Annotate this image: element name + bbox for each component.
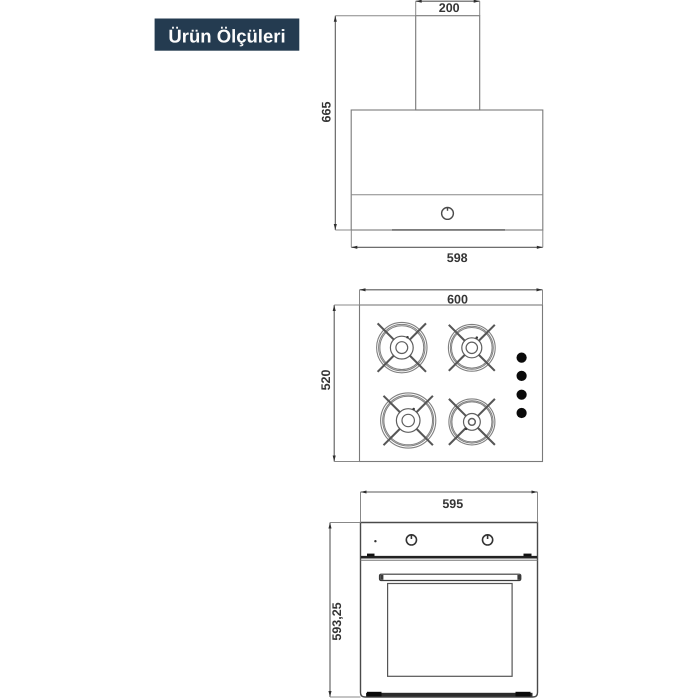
svg-text:Ürün Ölçüleri: Ürün Ölçüleri — [168, 26, 285, 47]
svg-text:520: 520 — [319, 370, 333, 391]
svg-text:595: 595 — [442, 497, 463, 511]
svg-text:600: 600 — [447, 293, 468, 307]
svg-text:200: 200 — [439, 1, 460, 15]
svg-text:665: 665 — [320, 102, 334, 123]
svg-text:593,25: 593,25 — [330, 602, 344, 640]
svg-text:598: 598 — [447, 251, 468, 265]
